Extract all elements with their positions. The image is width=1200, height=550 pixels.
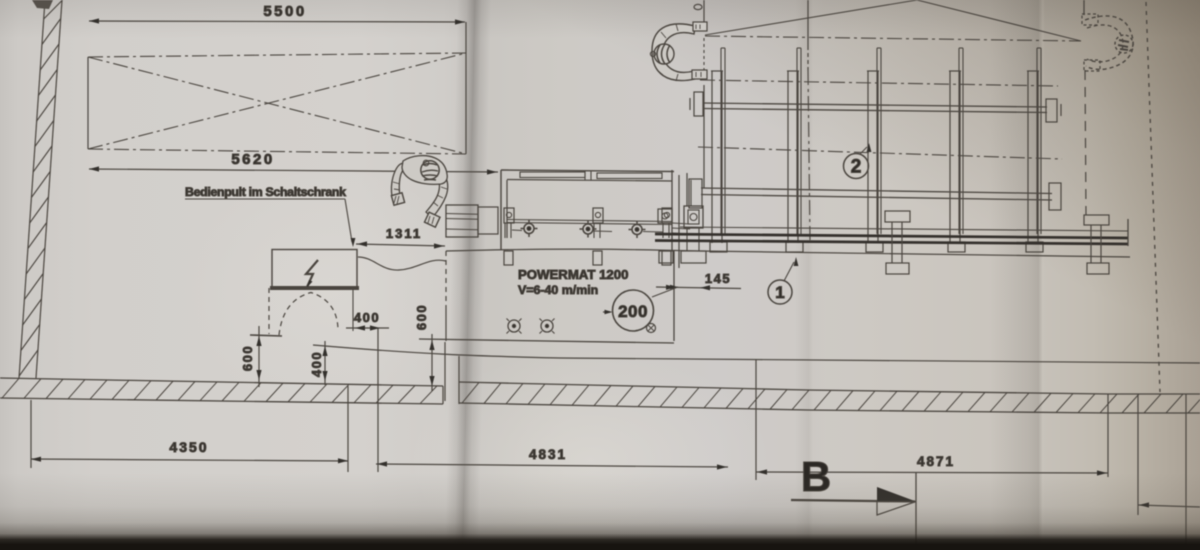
- svg-text:1: 1: [775, 283, 784, 302]
- svg-text:4871: 4871: [917, 454, 955, 469]
- svg-text:400: 400: [354, 310, 380, 325]
- svg-text:600: 600: [414, 304, 429, 330]
- svg-text:POWERMAT 1200: POWERMAT 1200: [518, 267, 628, 282]
- svg-text:400: 400: [309, 351, 324, 377]
- svg-text:V=6-40 m/min: V=6-40 m/min: [518, 283, 598, 297]
- svg-text:145: 145: [705, 271, 731, 286]
- svg-text:200: 200: [618, 302, 648, 321]
- svg-text:1311: 1311: [386, 226, 422, 241]
- svg-text:4831: 4831: [529, 447, 567, 462]
- svg-text:600: 600: [240, 345, 255, 371]
- svg-text:5500: 5500: [263, 3, 306, 20]
- svg-text:4350: 4350: [169, 439, 208, 455]
- svg-text:Bedienpult im Schaltschrank: Bedienpult im Schaltschrank: [185, 185, 346, 199]
- svg-text:5620: 5620: [231, 151, 274, 168]
- svg-text:B: B: [801, 453, 831, 500]
- svg-text:2: 2: [851, 157, 862, 178]
